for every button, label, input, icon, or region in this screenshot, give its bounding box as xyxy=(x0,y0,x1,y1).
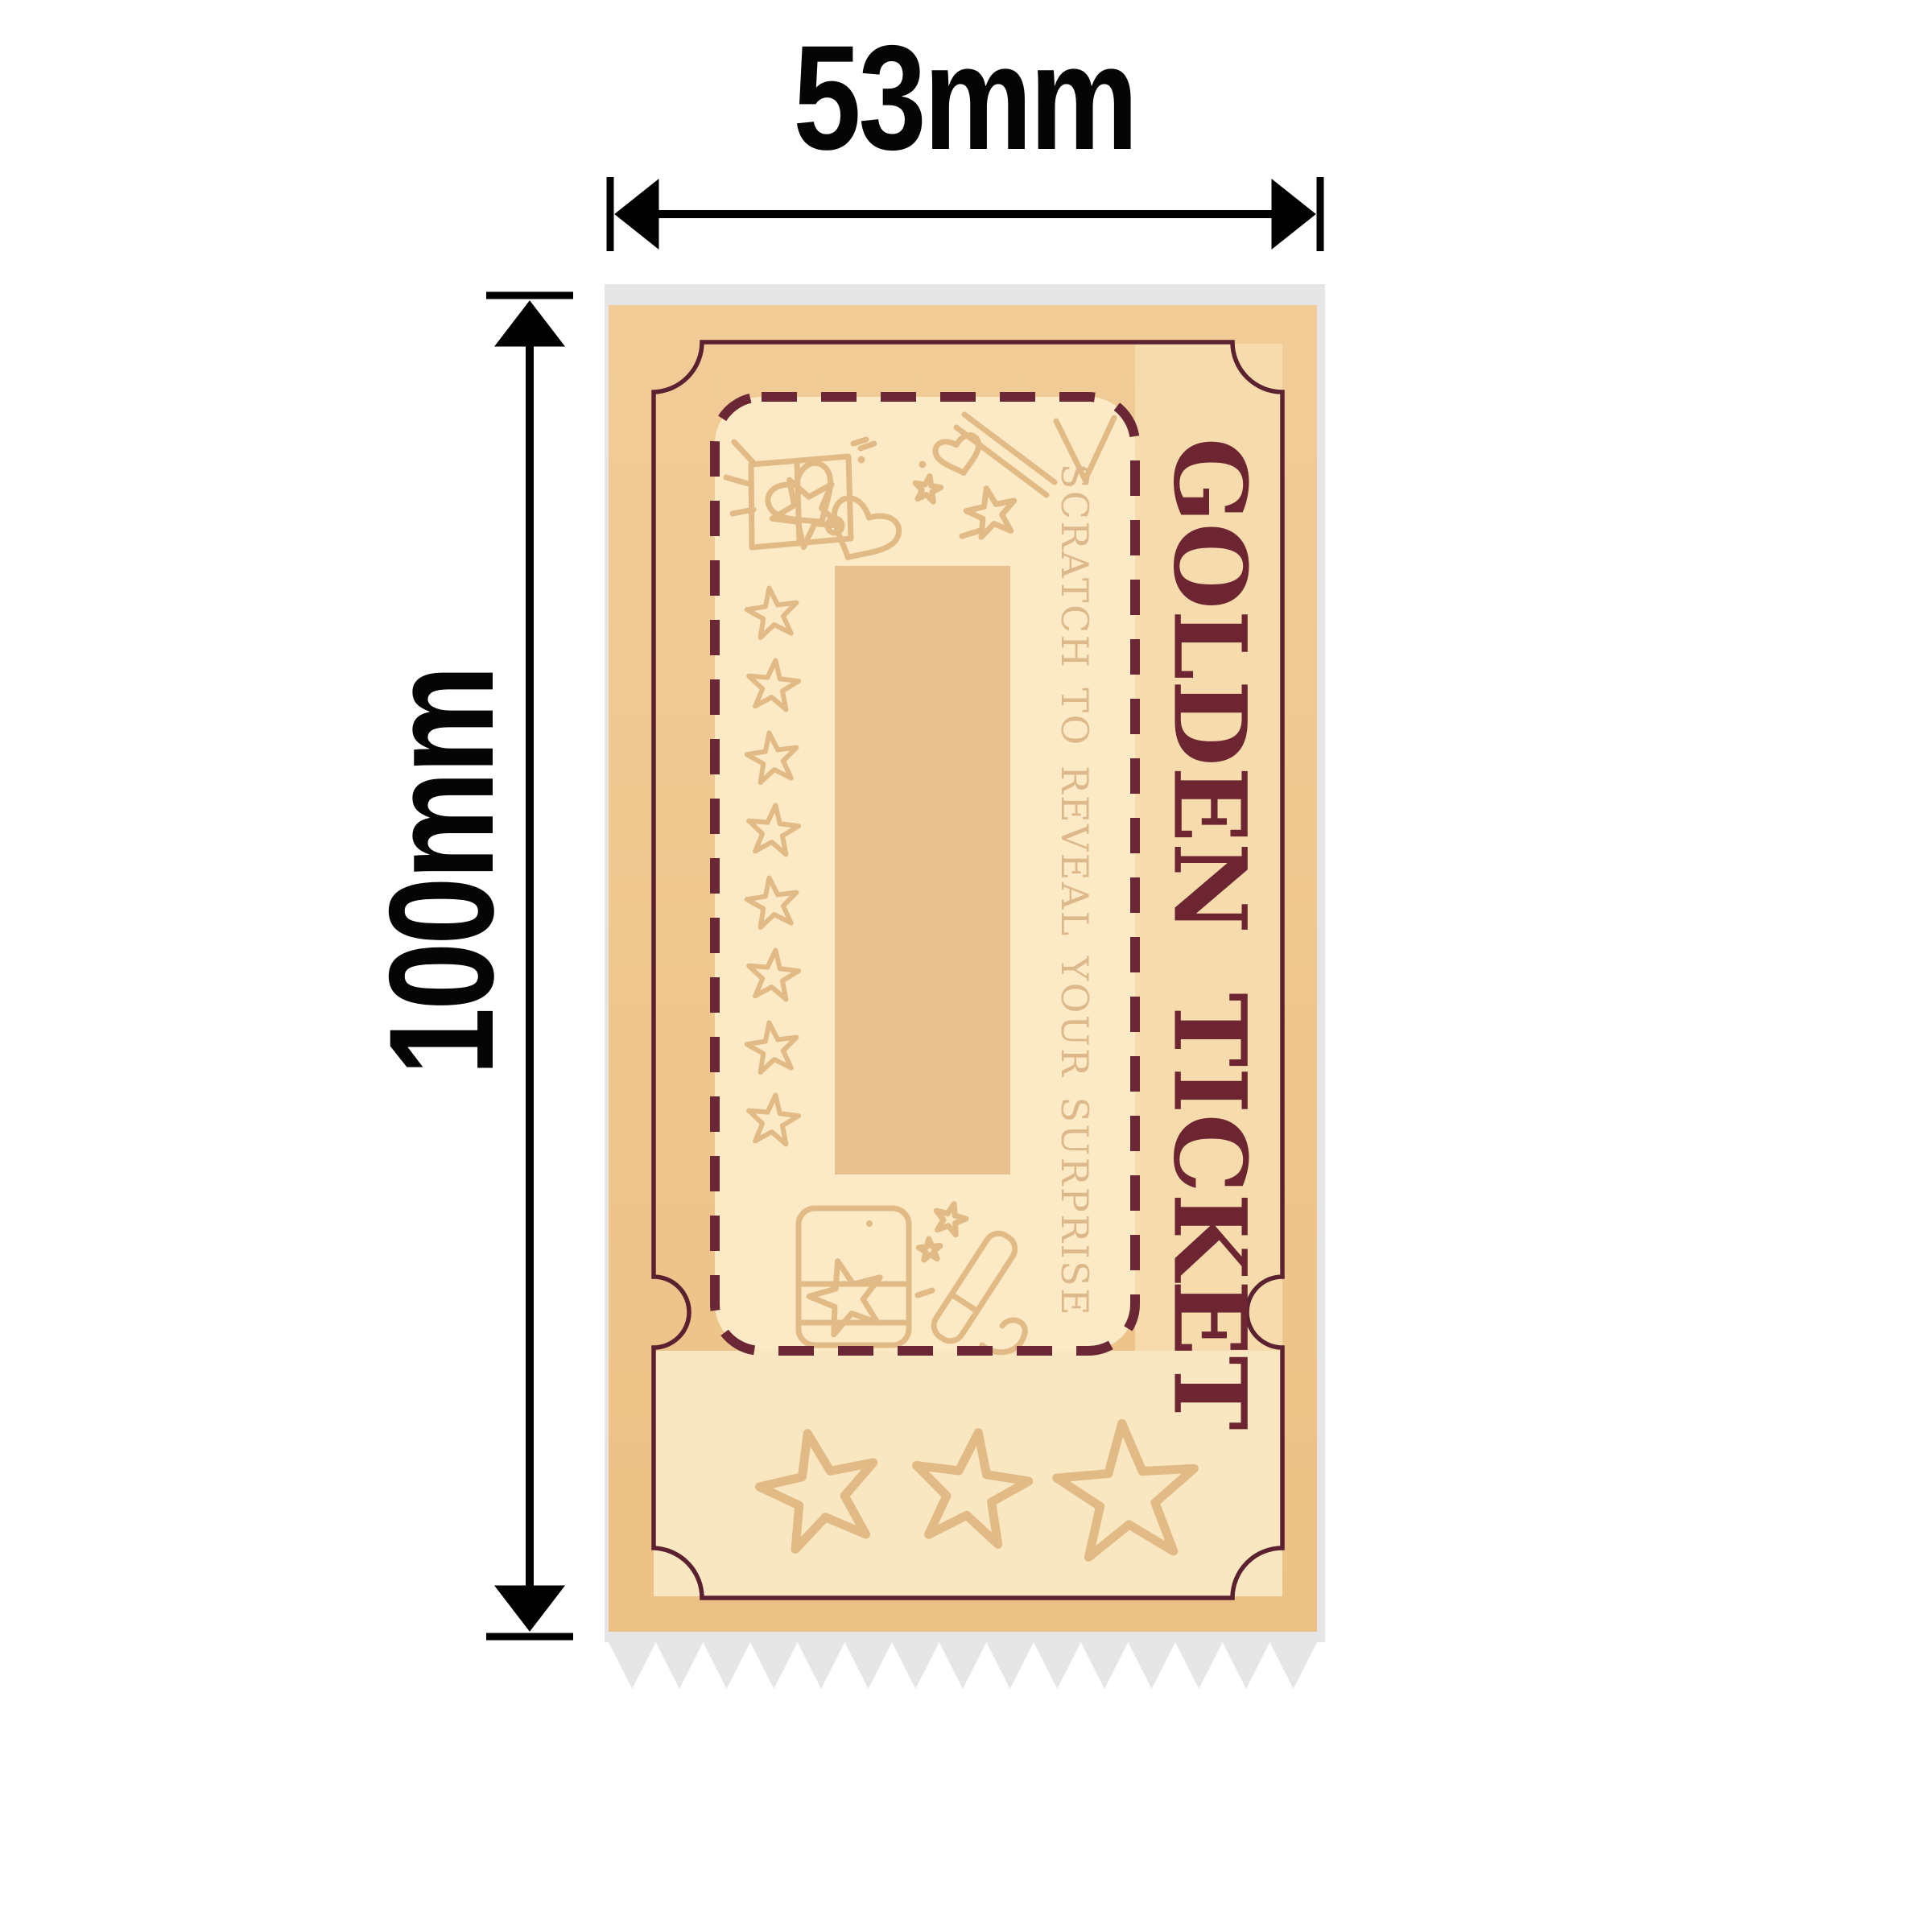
height-dimension-label: 100mm xyxy=(368,679,518,1075)
product-dimension-image: 53mm 100mm xyxy=(0,0,1932,1932)
arrowhead-left-icon xyxy=(615,180,658,249)
golden-ticket-label: GOLDEN TICKET SCRATCH TO REVEAL YOUR SUR… xyxy=(604,284,1326,1690)
ticket-title: GOLDEN TICKET xyxy=(1151,437,1268,1430)
scratch-instruction: SCRATCH TO REVEAL YOUR SURPRISE xyxy=(1053,464,1096,1317)
arrowhead-right-icon xyxy=(1272,180,1315,249)
arrowhead-down-icon xyxy=(495,1586,564,1631)
width-arrow xyxy=(610,177,1320,251)
width-dimension-label: 53mm xyxy=(766,24,1162,173)
arrowhead-up-icon xyxy=(495,301,564,346)
scratch-area xyxy=(835,566,1010,1174)
